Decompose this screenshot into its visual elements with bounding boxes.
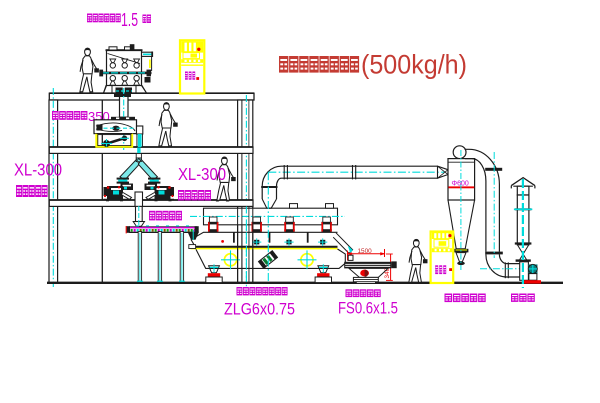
svg-text:XL-300: XL-300 [178, 164, 226, 184]
svg-text:(500kg/h): (500kg/h) [361, 50, 467, 80]
svg-text:FS0.6x1.5: FS0.6x1.5 [338, 299, 398, 318]
svg-text:ZLG6x0.75: ZLG6x0.75 [224, 300, 295, 319]
svg-text:XL-300: XL-300 [14, 160, 62, 180]
svg-text:Φ600: Φ600 [452, 181, 469, 188]
svg-text:1.5: 1.5 [121, 10, 138, 30]
svg-text:1500: 1500 [358, 248, 373, 255]
